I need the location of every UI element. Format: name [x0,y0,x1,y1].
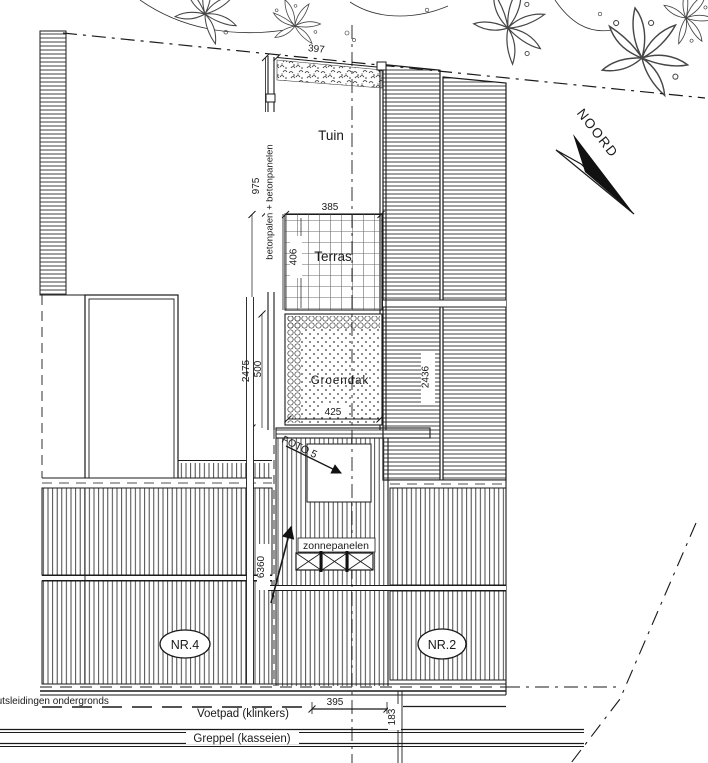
dim-425: 425 [325,407,342,418]
greppel-label: Greppel (kasseien) [193,733,290,745]
fence-label: betonpalen + betonpanelen [265,144,276,259]
dim-6360: 6360 [256,555,267,578]
fence-post [266,94,275,102]
terras-label: Terras [314,249,352,264]
tuin-label: Tuin [318,128,344,143]
fence-post [377,62,386,70]
nr4-label: NR.4 [171,638,200,652]
right-building-division [383,300,506,307]
dim-975: 975 [251,177,262,194]
rear-wall-band [276,428,430,438]
dim-406: 406 [289,248,300,265]
site-plan: 397 975 betonpalen + betonpanelen Tuin 3… [0,0,708,763]
roof-division-line [268,585,506,591]
utilities-label: nutsleidingen ondergronds [0,696,109,707]
voetpad-label: Voetpad (klinkers) [197,708,289,720]
dim-183: 183 [387,708,398,725]
dim-500: 500 [253,360,264,377]
dim-2436: 2436 [421,365,432,388]
dim-2475: 2475 [241,359,252,382]
groendak-label: Groendak [311,375,370,387]
neighbour-building-right [383,65,506,481]
property-line-gap [247,297,254,684]
left-hedge [40,31,66,295]
zonnepanelen-label: zonnepanelen [303,540,369,552]
nr2-label: NR.2 [428,638,457,652]
dim-395: 395 [327,697,344,708]
dim-385: 385 [322,202,339,213]
site-plan-svg: 397 975 betonpalen + betonpanelen Tuin 3… [0,0,708,763]
dim-397: 397 [307,43,325,56]
